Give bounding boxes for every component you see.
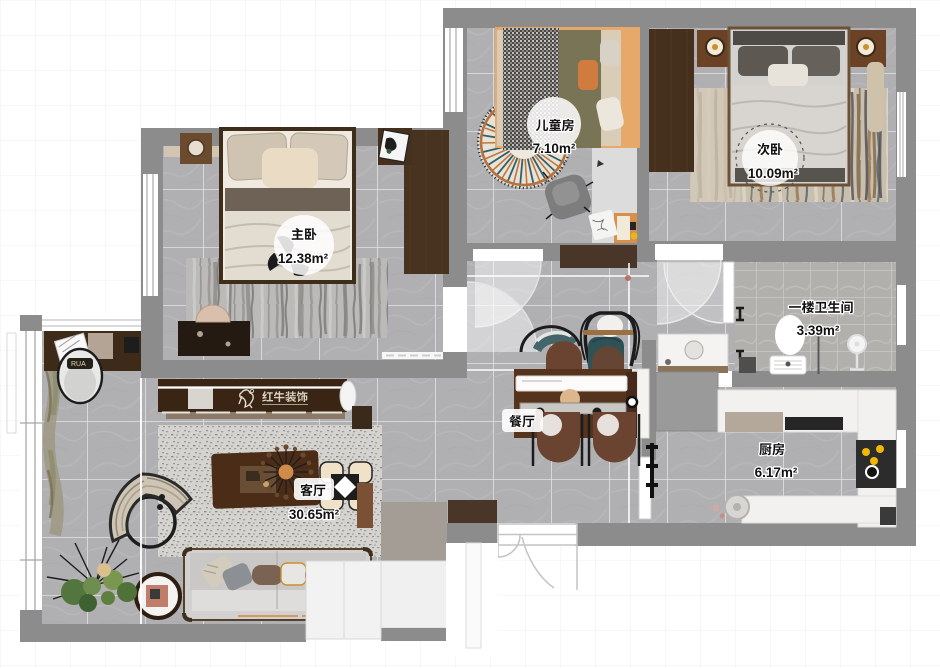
svg-text:10.09m²: 10.09m² <box>748 166 799 181</box>
svg-text:30.65m²: 30.65m² <box>289 507 340 522</box>
svg-text:6.17m²: 6.17m² <box>755 465 798 480</box>
svg-text:3.39m²: 3.39m² <box>797 323 840 338</box>
svg-text:RUA: RUA <box>71 361 86 368</box>
svg-text:7.10m²: 7.10m² <box>533 141 576 156</box>
svg-text:12.38m²: 12.38m² <box>278 251 329 266</box>
